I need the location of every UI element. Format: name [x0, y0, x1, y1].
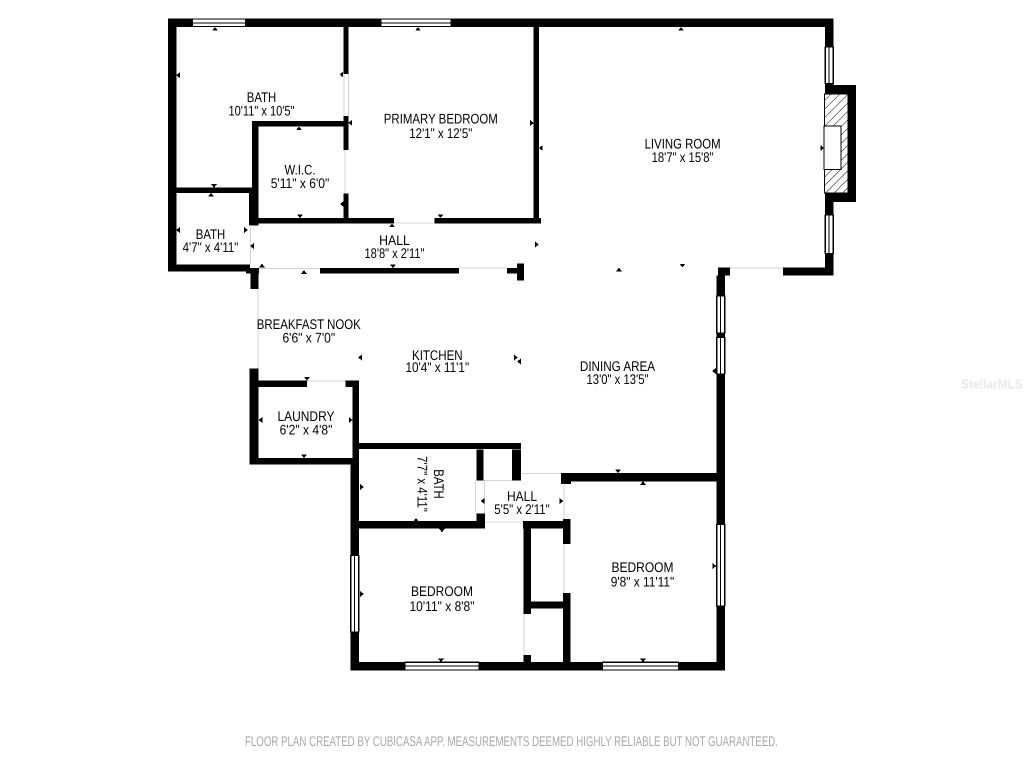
svg-text:FLOOR PLAN CREATED BY CUBICASA: FLOOR PLAN CREATED BY CUBICASA APP. MEAS… [245, 733, 778, 749]
svg-text:9'8" x 11'11": 9'8" x 11'11" [611, 574, 675, 590]
svg-text:10'11" x 10'5": 10'11" x 10'5" [229, 103, 295, 119]
svg-text:7'7" x 4'11": 7'7" x 4'11" [415, 456, 431, 512]
svg-text:10'4" x 11'1": 10'4" x 11'1" [405, 359, 469, 375]
svg-text:6'6" x 7'0": 6'6" x 7'0" [282, 329, 335, 345]
svg-text:18'7" x 15'8": 18'7" x 15'8" [652, 149, 714, 165]
svg-text:13'0" x 13'5": 13'0" x 13'5" [587, 371, 649, 387]
svg-text:StellarMLS: StellarMLS [961, 377, 1023, 392]
svg-text:BEDROOM: BEDROOM [612, 559, 674, 575]
svg-text:6'2" x 4'8": 6'2" x 4'8" [280, 421, 333, 437]
svg-text:5'11" x 6'0": 5'11" x 6'0" [271, 175, 330, 191]
svg-text:BEDROOM: BEDROOM [411, 583, 473, 599]
svg-text:4'7" x 4'11": 4'7" x 4'11" [183, 239, 239, 255]
svg-text:BATH: BATH [431, 469, 447, 499]
svg-text:10'11" x 8'8": 10'11" x 8'8" [410, 598, 475, 614]
svg-text:5'5" x 2'11": 5'5" x 2'11" [494, 501, 549, 517]
svg-text:12'1" x 12'5": 12'1" x 12'5" [409, 125, 472, 141]
svg-text:18'8" x 2'11": 18'8" x 2'11" [365, 245, 425, 261]
